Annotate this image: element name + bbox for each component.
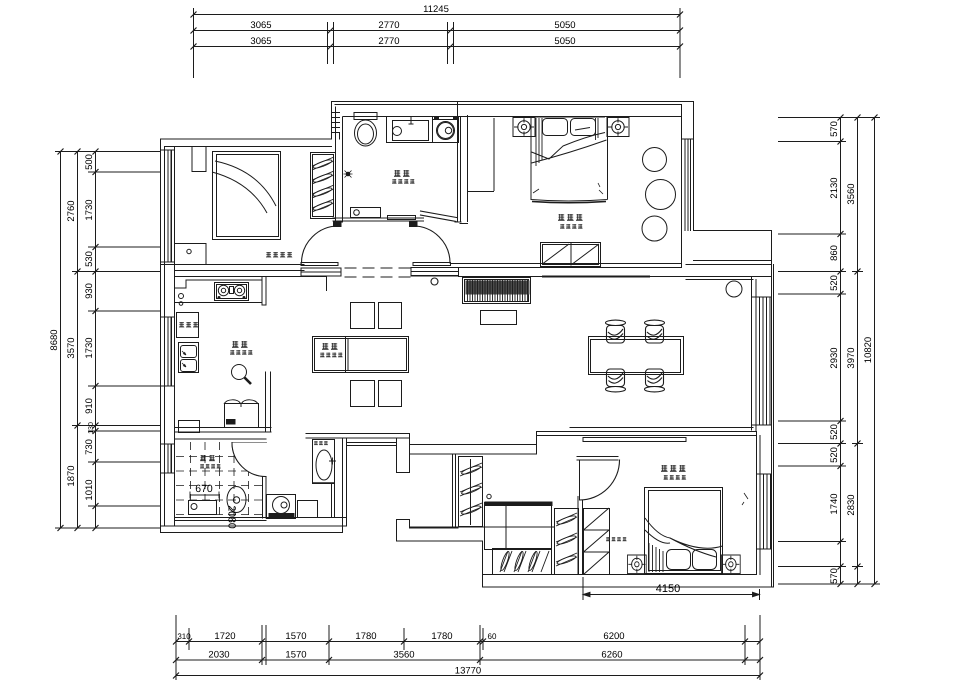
svg-text:3970: 3970: [846, 347, 857, 368]
svg-text:6260: 6260: [601, 650, 622, 661]
svg-text:1730: 1730: [84, 337, 95, 358]
svg-text:2770: 2770: [378, 20, 399, 31]
svg-text:860: 860: [829, 245, 840, 261]
svg-text:570: 570: [829, 568, 840, 584]
svg-text:500: 500: [84, 154, 95, 170]
svg-text:1570: 1570: [285, 650, 306, 661]
svg-text:130: 130: [88, 422, 95, 434]
svg-text:910: 910: [84, 398, 95, 414]
svg-text:3065: 3065: [250, 36, 271, 47]
svg-text:3065: 3065: [250, 20, 271, 31]
svg-text:1730: 1730: [84, 199, 95, 220]
svg-text:1780: 1780: [355, 631, 376, 642]
svg-text:570: 570: [829, 121, 840, 137]
svg-text:520: 520: [829, 447, 840, 463]
svg-text:10820: 10820: [863, 337, 874, 363]
svg-text:5050: 5050: [554, 36, 575, 47]
svg-text:310: 310: [177, 632, 191, 641]
svg-text:2770: 2770: [378, 36, 399, 47]
svg-text:2130: 2130: [829, 177, 840, 198]
svg-text:2930: 2930: [829, 347, 840, 368]
svg-text:3570: 3570: [66, 337, 77, 358]
svg-text:2760: 2760: [66, 200, 77, 221]
svg-text:1870: 1870: [66, 465, 77, 486]
svg-text:11245: 11245: [423, 4, 449, 15]
svg-text:5050: 5050: [554, 20, 575, 31]
svg-text:2030: 2030: [208, 650, 229, 661]
svg-text:520: 520: [829, 424, 840, 440]
svg-text:1720: 1720: [214, 631, 235, 642]
svg-text:670: 670: [195, 483, 213, 495]
svg-text:730: 730: [84, 439, 95, 455]
svg-text:520: 520: [829, 275, 840, 291]
svg-text:6200: 6200: [603, 631, 624, 642]
svg-text:1780: 1780: [431, 631, 452, 642]
svg-text:2080: 2080: [226, 505, 238, 529]
svg-text:3560: 3560: [846, 183, 857, 204]
svg-text:3560: 3560: [393, 650, 414, 661]
svg-text:8680: 8680: [49, 329, 60, 350]
svg-text:4150: 4150: [656, 583, 680, 595]
svg-text:930: 930: [84, 283, 95, 299]
svg-text:530: 530: [84, 251, 95, 267]
svg-text:2830: 2830: [846, 494, 857, 515]
svg-text:1570: 1570: [285, 631, 306, 642]
svg-text:1010: 1010: [84, 479, 95, 500]
svg-text:60: 60: [488, 632, 497, 641]
svg-text:13770: 13770: [455, 666, 481, 677]
svg-text:1740: 1740: [829, 493, 840, 514]
